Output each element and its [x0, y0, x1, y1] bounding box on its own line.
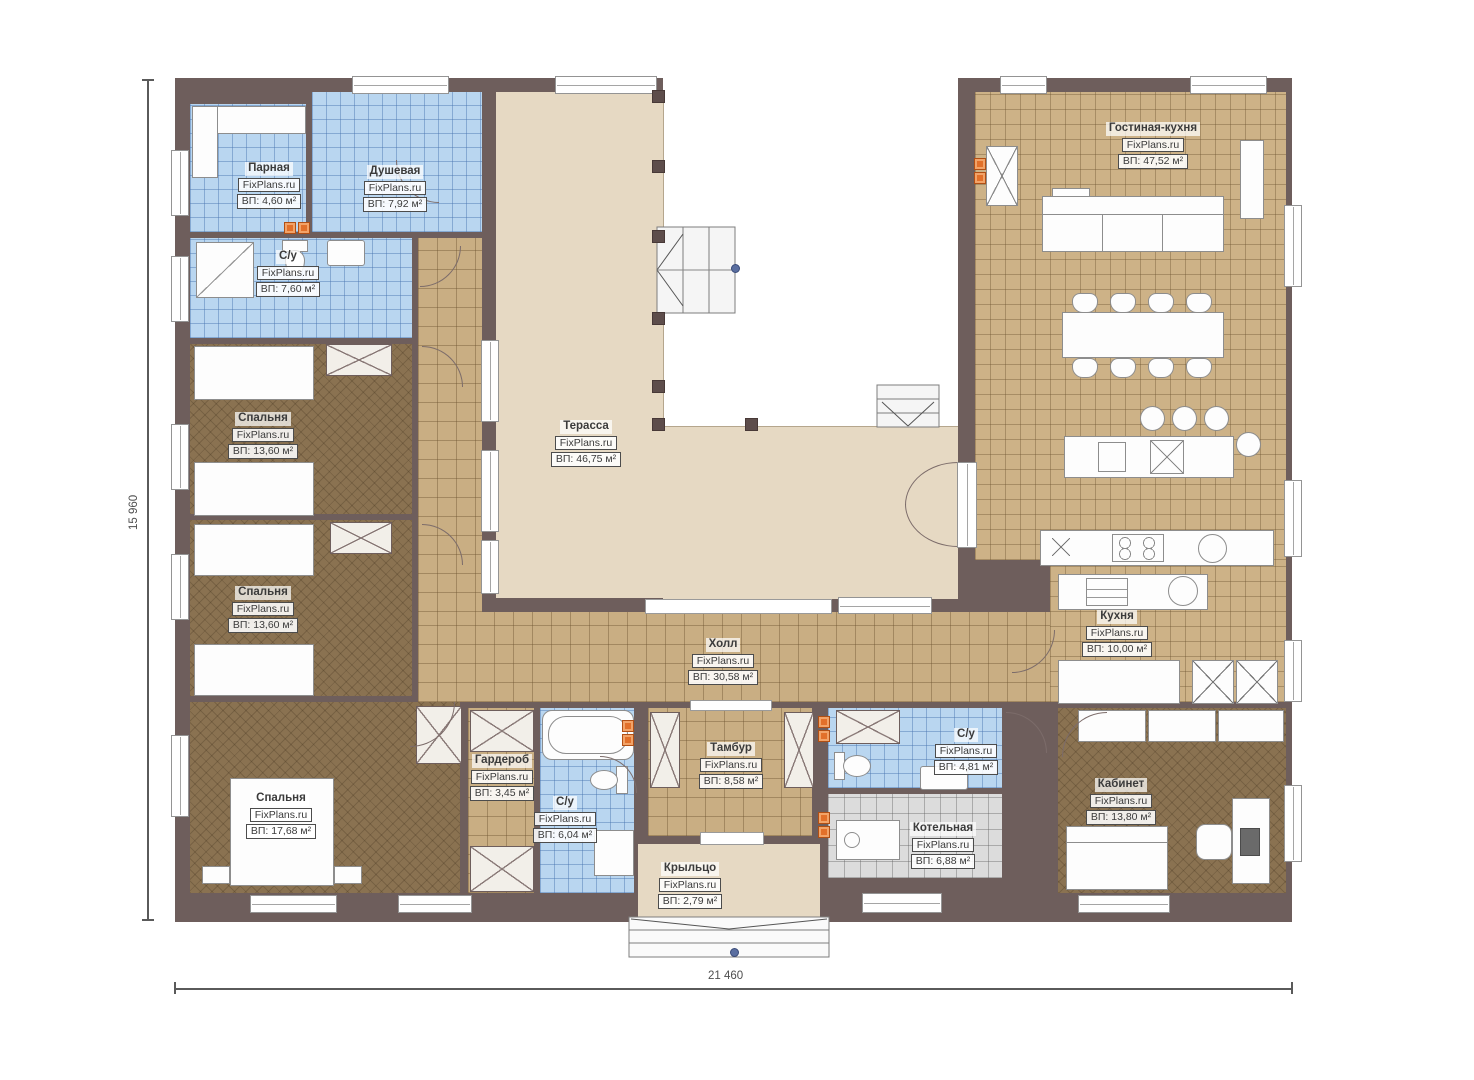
room-label-terrace: Терасса FixPlans.ru ВП: 46,75 м²: [528, 420, 644, 467]
room-name: Холл: [706, 638, 741, 652]
window: [1000, 76, 1047, 94]
room-area: ВП: 10,00 м²: [1082, 642, 1152, 657]
room-label-tambour: Тамбур FixPlans.ru ВП: 8,58 м²: [676, 742, 786, 789]
room-label-wardrobe: Гардероб FixPlans.ru ВП: 3,45 м²: [462, 754, 542, 801]
room-label-bedroom-3: Спальня FixPlans.ru ВП: 17,68 м²: [226, 792, 336, 839]
porch-steps: [628, 916, 830, 958]
fireplace: [986, 146, 1018, 206]
dimension-height-label: 15 960: [128, 495, 140, 530]
window: [481, 340, 499, 422]
room-label-office: Кабинет FixPlans.ru ВП: 13,80 м²: [1066, 778, 1176, 825]
room-area: ВП: 7,60 м²: [256, 282, 320, 297]
room-brand: FixPlans.ru: [692, 654, 755, 669]
nightstand: [202, 866, 230, 884]
kitchen-island: [1064, 436, 1234, 478]
terrace-post: [652, 418, 665, 431]
shelf-unit: [1148, 710, 1216, 742]
dimension-tick: [142, 79, 154, 81]
room-name: С/у: [954, 728, 978, 742]
terrace-steps-upper: [656, 226, 736, 314]
room-area: ВП: 6,04 м²: [533, 828, 597, 843]
window: [555, 76, 657, 94]
terrace-post: [652, 230, 665, 243]
room-name: Кухня: [1097, 610, 1137, 624]
terrace-post: [652, 160, 665, 173]
wardrobe: [470, 710, 534, 752]
room-area: ВП: 30,58 м²: [688, 670, 758, 685]
bathtub-inner: [548, 716, 628, 754]
window: [171, 554, 189, 620]
outlet-markers: [974, 158, 986, 184]
dining-chair: [1148, 358, 1174, 378]
room-label-porch: Крыльцо FixPlans.ru ВП: 2,79 м²: [640, 862, 740, 909]
room-label-dushevaya: Душевая FixPlans.ru ВП: 7,92 м²: [340, 165, 450, 212]
dining-chair: [1110, 293, 1136, 313]
room-brand: FixPlans.ru: [250, 808, 313, 823]
room-area: ВП: 17,68 м²: [246, 824, 316, 839]
terrace-steps-lower: [876, 384, 940, 428]
dimension-tick: [1291, 982, 1293, 994]
dimension-point: [730, 948, 739, 957]
dimension-width-label: 21 460: [708, 970, 743, 982]
room-brand: FixPlans.ru: [1090, 794, 1153, 809]
dimension-line-vertical: [147, 80, 149, 920]
dimension-tick: [174, 982, 176, 994]
round-sink: [1168, 576, 1198, 606]
bed: [194, 644, 314, 696]
room-area: ВП: 6,88 м²: [911, 854, 975, 869]
window: [1284, 480, 1302, 557]
appliance: [1192, 660, 1234, 704]
wardrobe: [330, 522, 392, 554]
room-name: С/у: [276, 250, 300, 264]
outlet-markers: [818, 716, 830, 742]
tambour-hall-opening: [690, 700, 772, 711]
appliance: [1236, 660, 1278, 704]
room-brand: FixPlans.ru: [238, 178, 301, 193]
office-chair: [1196, 824, 1232, 860]
window: [171, 735, 189, 817]
drawer-unit: [1086, 578, 1128, 606]
window: [481, 540, 499, 594]
window: [481, 450, 499, 532]
room-brand: FixPlans.ru: [232, 428, 295, 443]
boiler-dial: [844, 832, 860, 848]
window: [352, 76, 449, 94]
room-label-boiler: Котельная FixPlans.ru ВП: 6,88 м²: [888, 822, 998, 869]
room-name: Спальня: [253, 792, 309, 806]
window: [171, 424, 189, 490]
dining-chair: [1148, 293, 1174, 313]
floor-plan-canvas: Парная FixPlans.ru ВП: 4,60 м² Душевая F…: [0, 0, 1474, 1080]
dining-chair: [1072, 358, 1098, 378]
window: [1284, 205, 1302, 287]
outlet-markers: [818, 812, 830, 838]
room-brand: FixPlans.ru: [471, 770, 534, 785]
entry-door-threshold: [700, 832, 764, 845]
room-name: Гардероб: [472, 754, 532, 768]
room-area: ВП: 2,79 м²: [658, 894, 722, 909]
terrace-post: [745, 418, 758, 431]
back-door-opening: [862, 893, 942, 913]
room-name: Парная: [245, 162, 293, 176]
window: [171, 150, 189, 216]
cooktop: [1112, 534, 1164, 562]
dining-chair: [1186, 293, 1212, 313]
toilet-bowl: [843, 755, 871, 777]
room-brand: FixPlans.ru: [700, 758, 763, 773]
bar-stool: [1140, 406, 1165, 431]
room-name: С/у: [553, 796, 577, 810]
room-name: Котельная: [910, 822, 976, 836]
dining-chair: [1110, 358, 1136, 378]
room-area: ВП: 13,60 м²: [228, 618, 298, 633]
room-area: ВП: 4,81 м²: [934, 760, 998, 775]
dimension-tick: [142, 919, 154, 921]
room-area: ВП: 8,58 м²: [699, 774, 763, 789]
room-name: Душевая: [367, 165, 424, 179]
room-name: Крыльцо: [661, 862, 719, 876]
hall-closet: [784, 712, 814, 788]
bed: [194, 524, 314, 576]
bar-stool: [1172, 406, 1197, 431]
sofa-back: [1042, 196, 1224, 216]
window: [398, 895, 472, 913]
room-label-su-760: С/у FixPlans.ru ВП: 7,60 м²: [238, 250, 338, 297]
room-area: ВП: 13,60 м²: [228, 444, 298, 459]
nightstand: [334, 866, 362, 884]
room-label-su-604: С/у FixPlans.ru ВП: 6,04 м²: [520, 796, 610, 843]
room-label-parnaya: Парная FixPlans.ru ВП: 4,60 м²: [214, 162, 324, 209]
room-label-bedroom-2: Спальня FixPlans.ru ВП: 13,60 м²: [208, 586, 318, 633]
shelf-unit: [1218, 710, 1284, 742]
terrace-post: [652, 90, 665, 103]
outlet-markers: [284, 222, 310, 234]
room-brand: FixPlans.ru: [232, 602, 295, 617]
bed: [194, 462, 314, 516]
terrace-floor-upper: [496, 92, 664, 598]
terrace-post: [652, 380, 665, 393]
room-brand: FixPlans.ru: [534, 812, 597, 827]
dimension-point: [731, 264, 740, 273]
island-hob: [1098, 442, 1126, 472]
round-sink: [1198, 534, 1227, 563]
room-brand: FixPlans.ru: [659, 878, 722, 893]
room-area: ВП: 7,92 м²: [363, 197, 427, 212]
wardrobe: [326, 344, 392, 376]
laptop: [1240, 828, 1260, 856]
room-label-su-481: С/у FixPlans.ru ВП: 4,81 м²: [916, 728, 1016, 775]
dining-chair: [1072, 293, 1098, 313]
room-area: ВП: 46,75 м²: [551, 452, 621, 467]
room-area: ВП: 4,60 м²: [237, 194, 301, 209]
window: [250, 895, 337, 913]
kitchen-cabinet: [1058, 660, 1180, 704]
room-brand: FixPlans.ru: [1086, 626, 1149, 641]
terrace-post: [652, 312, 665, 325]
sofa-seat: [1042, 214, 1224, 252]
office-sofa: [1066, 842, 1168, 890]
terrace-sliding-door: [645, 599, 832, 614]
terrace-double-door: [957, 462, 977, 548]
window: [171, 256, 189, 322]
room-brand: FixPlans.ru: [555, 436, 618, 451]
tv-cabinet: [1240, 140, 1264, 219]
room-label-living-kitchen: Гостиная-кухня FixPlans.ru ВП: 47,52 м²: [1088, 122, 1218, 169]
room-brand: FixPlans.ru: [935, 744, 998, 759]
room-name: Спальня: [235, 412, 291, 426]
room-name: Кабинет: [1095, 778, 1148, 792]
room-label-kitchen: Кухня FixPlans.ru ВП: 10,00 м²: [1062, 610, 1172, 657]
room-name: Гостиная-кухня: [1106, 122, 1200, 136]
window: [1190, 76, 1267, 94]
window: [838, 597, 932, 614]
room-area: ВП: 13,80 м²: [1086, 810, 1156, 825]
room-brand: FixPlans.ru: [364, 181, 427, 196]
wardrobe: [470, 846, 534, 892]
room-name: Тамбур: [707, 742, 755, 756]
room-brand: FixPlans.ru: [912, 838, 975, 853]
window: [1078, 895, 1170, 913]
island-sink: [1150, 440, 1184, 474]
outlet-markers: [622, 720, 634, 746]
dimension-line-horizontal: [175, 988, 1292, 990]
bathroom-cabinet: [836, 710, 900, 744]
bed: [194, 346, 314, 400]
vent-symbol: [1052, 538, 1070, 556]
room-label-hall: Холл FixPlans.ru ВП: 30,58 м²: [668, 638, 778, 685]
dining-table: [1062, 312, 1224, 358]
room-brand: FixPlans.ru: [257, 266, 320, 281]
room-name: Спальня: [235, 586, 291, 600]
room-area: ВП: 47,52 м²: [1118, 154, 1188, 169]
room-brand: FixPlans.ru: [1122, 138, 1185, 153]
room-name: Терасса: [560, 420, 612, 434]
room-label-bedroom-1: Спальня FixPlans.ru ВП: 13,60 м²: [208, 412, 318, 459]
bar-stool: [1204, 406, 1229, 431]
dining-chair: [1186, 358, 1212, 378]
window: [1284, 640, 1302, 702]
window: [1284, 785, 1302, 862]
bar-stool: [1236, 432, 1261, 457]
